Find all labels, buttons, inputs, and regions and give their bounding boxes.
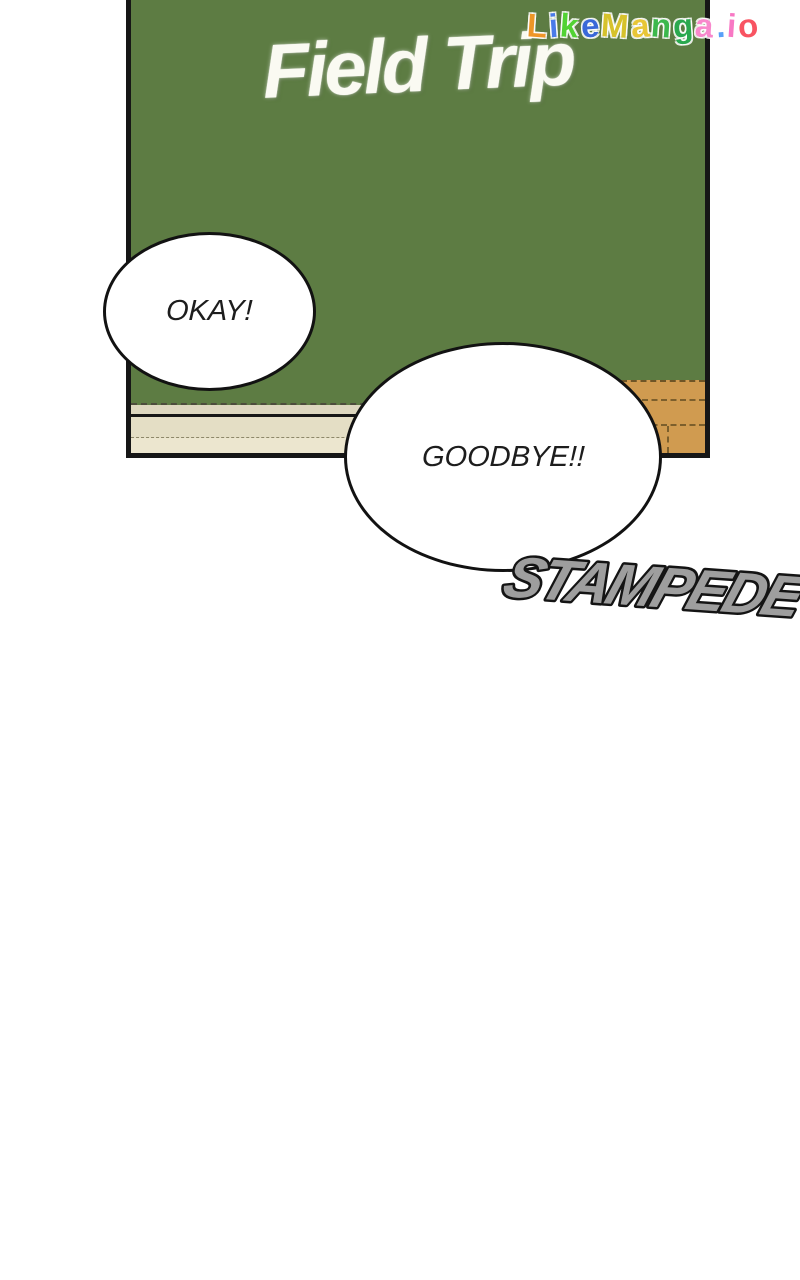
watermark-letter: M	[600, 4, 632, 48]
speech-bubble-goodbye-text: GOODBYE!!	[421, 441, 585, 474]
watermark-letter: L	[526, 4, 551, 47]
watermark-letter: n	[649, 4, 674, 47]
watermark-letter: k	[559, 4, 582, 47]
desk-seam-vertical	[667, 426, 669, 453]
sfx-stampede-text: STAMPEDE	[496, 546, 800, 630]
speech-bubble-okay-text: OKAY!	[166, 295, 254, 328]
site-watermark: LikeManga.io	[527, 5, 760, 47]
speech-bubble-okay: OKAY!	[103, 232, 316, 391]
watermark-letter: a	[694, 4, 717, 47]
sfx-stampede: STAMPEDE	[484, 522, 784, 632]
watermark-letter: o	[737, 4, 762, 47]
